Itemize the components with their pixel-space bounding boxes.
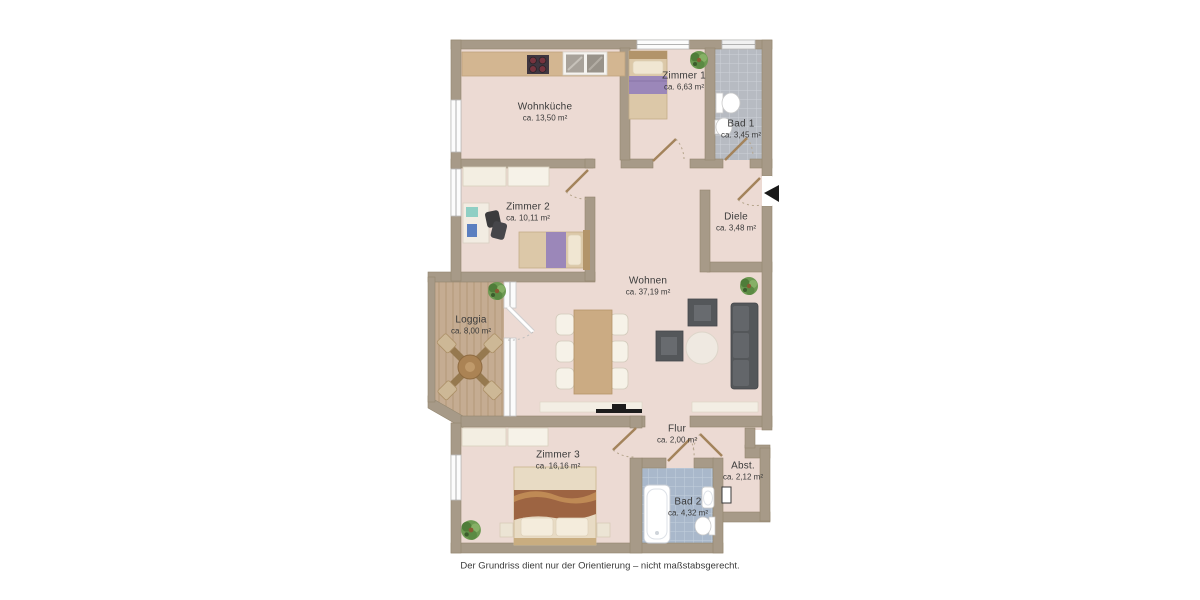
- wardrobe: [463, 167, 549, 186]
- floorplan-page: Wohnküche ca. 13,50 m² Zimmer 1 ca. 6,63…: [0, 0, 1200, 600]
- bed-icon: [500, 467, 610, 545]
- toilet-icon: [695, 517, 715, 535]
- loggia-glazing: [504, 282, 516, 416]
- window-icon: [451, 100, 461, 152]
- window-icon: [451, 455, 461, 500]
- shaft-door-icon: [722, 487, 731, 503]
- kitchen-counter: [462, 52, 625, 76]
- wardrobe: [462, 428, 548, 446]
- plant-icon: [690, 51, 708, 69]
- washbasin-icon: [715, 118, 732, 136]
- bed-icon: [629, 51, 667, 119]
- washbasin-icon: [702, 487, 714, 508]
- toilet-icon: [716, 93, 740, 113]
- dining-table-icon: [556, 310, 628, 394]
- armchair-icon: [688, 299, 717, 326]
- bathtub-icon: [644, 485, 670, 543]
- bed-icon: [519, 230, 590, 270]
- coffee-table: [686, 332, 718, 364]
- plant-icon: [740, 277, 758, 295]
- sofa-icon: [731, 303, 758, 389]
- floorplan-drawing: [0, 0, 1200, 600]
- plant-icon: [461, 520, 481, 540]
- window-icon: [451, 169, 461, 216]
- window-icon: [637, 40, 689, 49]
- armchair-icon: [656, 331, 683, 361]
- stove-icon: [527, 55, 549, 74]
- plant-icon: [488, 282, 506, 300]
- kitchen-sink-icon: [563, 52, 607, 75]
- window-icon: [722, 40, 755, 49]
- disclaimer-caption: Der Grundriss dient nur der Orientierung…: [460, 561, 739, 572]
